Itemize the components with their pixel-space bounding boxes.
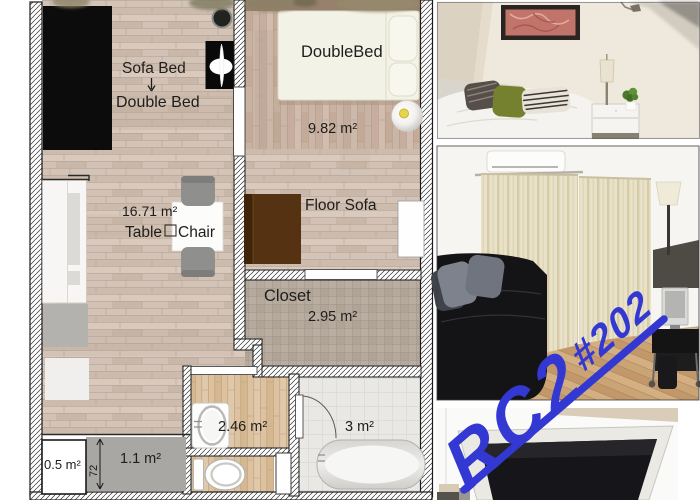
svg-text:9.82 m²: 9.82 m² (308, 121, 357, 137)
svg-text:3 m²: 3 m² (345, 419, 374, 435)
svg-text:2.95 m²: 2.95 m² (308, 309, 357, 325)
svg-text:DoubleBed: DoubleBed (301, 43, 383, 61)
svg-text:16.71 m²: 16.71 m² (122, 203, 178, 219)
svg-text:2.46 m²: 2.46 m² (218, 419, 267, 435)
svg-text:Chair: Chair (178, 224, 215, 241)
svg-text:Floor Sofa: Floor Sofa (305, 197, 377, 214)
svg-text:Sofa Bed: Sofa Bed (122, 60, 186, 77)
svg-text:Double Bed: Double Bed (116, 94, 200, 111)
svg-text:Closet: Closet (264, 287, 311, 305)
svg-text:72: 72 (88, 465, 100, 477)
svg-text:Table: Table (125, 224, 162, 241)
svg-text:0.5 m²: 0.5 m² (44, 457, 82, 472)
svg-text:1.1 m²: 1.1 m² (120, 451, 161, 467)
